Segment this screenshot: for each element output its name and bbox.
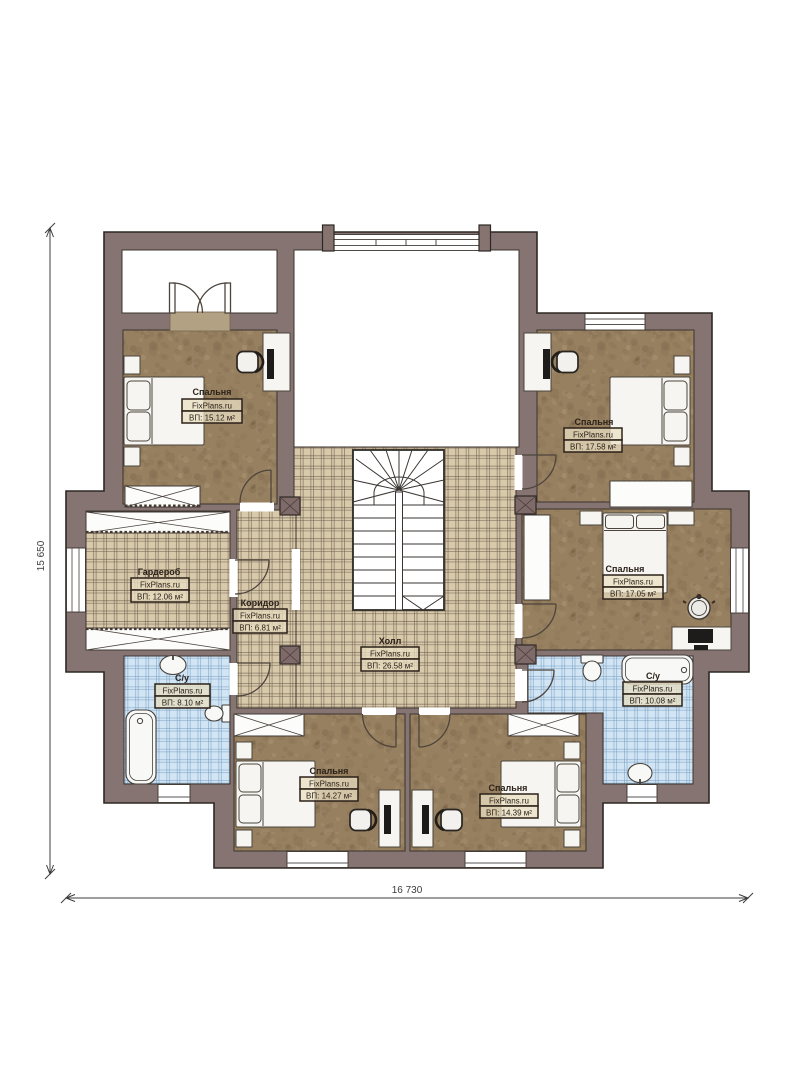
svg-text:16 730: 16 730 bbox=[392, 885, 423, 896]
svg-text:ВП: 14.39 м²: ВП: 14.39 м² bbox=[486, 809, 532, 818]
svg-text:FixPlans.ru: FixPlans.ru bbox=[192, 402, 232, 411]
svg-text:Холл: Холл bbox=[379, 636, 402, 646]
svg-text:ВП: 12.06 м²: ВП: 12.06 м² bbox=[137, 593, 183, 602]
svg-text:Коридор: Коридор bbox=[241, 598, 280, 608]
svg-text:FixPlans.ru: FixPlans.ru bbox=[309, 780, 349, 789]
svg-text:ВП: 6.81 м²: ВП: 6.81 м² bbox=[239, 624, 281, 633]
svg-text:Спальня: Спальня bbox=[489, 783, 528, 793]
svg-text:ВП: 17.58 м²: ВП: 17.58 м² bbox=[570, 443, 616, 452]
svg-text:ВП: 8.10 м²: ВП: 8.10 м² bbox=[162, 699, 204, 708]
svg-text:15 650: 15 650 bbox=[36, 540, 47, 571]
svg-text:С/у: С/у bbox=[175, 673, 189, 683]
svg-text:FixPlans.ru: FixPlans.ru bbox=[489, 797, 529, 806]
svg-text:FixPlans.ru: FixPlans.ru bbox=[613, 578, 653, 587]
svg-text:Спальня: Спальня bbox=[193, 387, 232, 397]
svg-text:Спальня: Спальня bbox=[310, 766, 349, 776]
svg-text:С/у: С/у bbox=[646, 671, 660, 681]
svg-text:ВП: 14.27 м²: ВП: 14.27 м² bbox=[306, 792, 352, 801]
svg-text:FixPlans.ru: FixPlans.ru bbox=[240, 612, 280, 621]
svg-text:ВП: 10.08 м²: ВП: 10.08 м² bbox=[630, 697, 676, 706]
svg-text:ВП: 26.58 м²: ВП: 26.58 м² bbox=[367, 662, 413, 671]
svg-text:FixPlans.ru: FixPlans.ru bbox=[573, 431, 613, 440]
svg-text:FixPlans.ru: FixPlans.ru bbox=[370, 650, 410, 659]
svg-text:FixPlans.ru: FixPlans.ru bbox=[632, 685, 672, 694]
svg-text:FixPlans.ru: FixPlans.ru bbox=[140, 581, 180, 590]
svg-text:FixPlans.ru: FixPlans.ru bbox=[162, 687, 202, 696]
svg-text:ВП: 15.12 м²: ВП: 15.12 м² bbox=[189, 414, 235, 423]
svg-text:Гардероб: Гардероб bbox=[138, 567, 181, 577]
svg-text:Спальня: Спальня bbox=[606, 564, 645, 574]
svg-text:ВП: 17.05 м²: ВП: 17.05 м² bbox=[610, 590, 656, 599]
svg-text:Спальня: Спальня bbox=[575, 417, 614, 427]
